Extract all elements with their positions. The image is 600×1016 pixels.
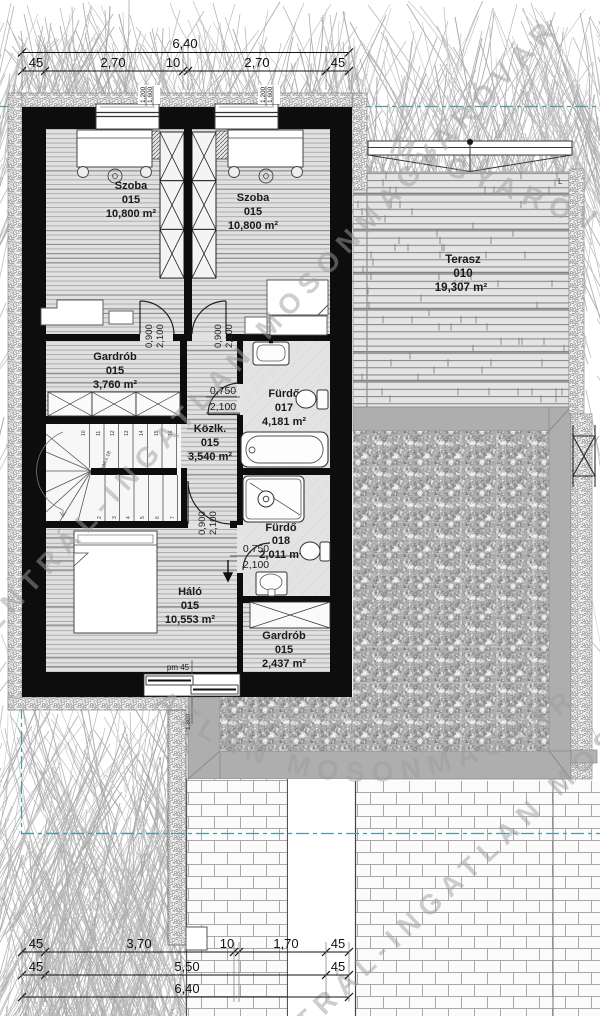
- svg-text:017: 017: [275, 402, 293, 414]
- svg-text:018: 018: [272, 535, 290, 547]
- svg-text:015: 015: [244, 206, 262, 218]
- svg-text:19,307 m²: 19,307 m²: [435, 282, 488, 294]
- svg-text:10,800 m²: 10,800 m²: [106, 208, 156, 220]
- svg-text:1,200: 1,200: [260, 86, 267, 103]
- svg-text:5: 5: [140, 516, 146, 519]
- svg-text:3,540 m²: 3,540 m²: [188, 451, 232, 463]
- svg-text:4: 4: [126, 516, 132, 519]
- svg-text:Háló: Háló: [178, 586, 202, 598]
- svg-text:45: 45: [29, 55, 43, 70]
- svg-text:2,437 m²: 2,437 m²: [262, 658, 306, 670]
- svg-text:0,750: 0,750: [243, 543, 269, 555]
- svg-text:10,800 m²: 10,800 m²: [228, 220, 278, 232]
- svg-text:015: 015: [181, 600, 199, 612]
- svg-text:Szoba: Szoba: [115, 180, 148, 192]
- svg-text:13: 13: [124, 430, 130, 436]
- svg-text:5,50: 5,50: [174, 959, 199, 974]
- svg-text:1,200: 1,200: [140, 86, 147, 103]
- svg-text:0,900: 0,900: [144, 324, 155, 348]
- svg-text:0,900: 0,900: [213, 324, 224, 348]
- svg-text:2,70: 2,70: [244, 55, 269, 70]
- svg-text:45: 45: [331, 55, 345, 70]
- svg-text:pm 45: pm 45: [167, 663, 190, 672]
- svg-text:010: 010: [453, 268, 472, 280]
- svg-text:2,70: 2,70: [100, 55, 125, 70]
- svg-text:015: 015: [122, 194, 140, 206]
- svg-text:10,553 m²: 10,553 m²: [165, 614, 215, 626]
- svg-text:45: 45: [331, 959, 345, 974]
- svg-text:015: 015: [201, 437, 219, 449]
- svg-text:10: 10: [166, 55, 180, 70]
- svg-text:6,40: 6,40: [174, 981, 199, 996]
- svg-text:10: 10: [81, 430, 87, 436]
- svg-text:015: 015: [275, 644, 293, 656]
- svg-text:Gardrób: Gardrób: [93, 351, 137, 363]
- svg-text:3,760 m²: 3,760 m²: [93, 379, 137, 391]
- svg-text:10: 10: [220, 936, 234, 951]
- svg-text:3: 3: [112, 516, 118, 519]
- svg-text:Közlk.: Közlk.: [194, 423, 226, 435]
- svg-text:11: 11: [96, 431, 102, 436]
- svg-text:45: 45: [29, 959, 43, 974]
- svg-text:2,100: 2,100: [208, 511, 219, 535]
- svg-text:7: 7: [170, 516, 176, 519]
- svg-text:Fürdő: Fürdő: [268, 388, 299, 400]
- svg-text:45: 45: [29, 936, 43, 951]
- svg-text:Terasz: Terasz: [445, 254, 481, 266]
- svg-text:Gardrób: Gardrób: [262, 630, 306, 642]
- svg-text:2,100: 2,100: [243, 559, 269, 571]
- svg-text:Szoba: Szoba: [237, 192, 270, 204]
- svg-text:2,100: 2,100: [155, 324, 166, 348]
- svg-text:1,70: 1,70: [273, 936, 298, 951]
- svg-text:015: 015: [106, 365, 124, 377]
- svg-text:14: 14: [139, 430, 145, 436]
- svg-text:0,900: 0,900: [197, 511, 208, 535]
- svg-text:45: 45: [331, 936, 345, 951]
- svg-text:1,600: 1,600: [267, 86, 274, 103]
- svg-text:12: 12: [110, 430, 116, 436]
- svg-text:3,70: 3,70: [126, 936, 151, 951]
- svg-text:4,181 m²: 4,181 m²: [262, 416, 306, 428]
- svg-text:6,40: 6,40: [172, 36, 197, 51]
- svg-text:6: 6: [155, 516, 161, 519]
- svg-text:1,600: 1,600: [147, 86, 154, 103]
- svg-text:Fürdő: Fürdő: [265, 522, 296, 534]
- svg-text:L: L: [558, 177, 563, 186]
